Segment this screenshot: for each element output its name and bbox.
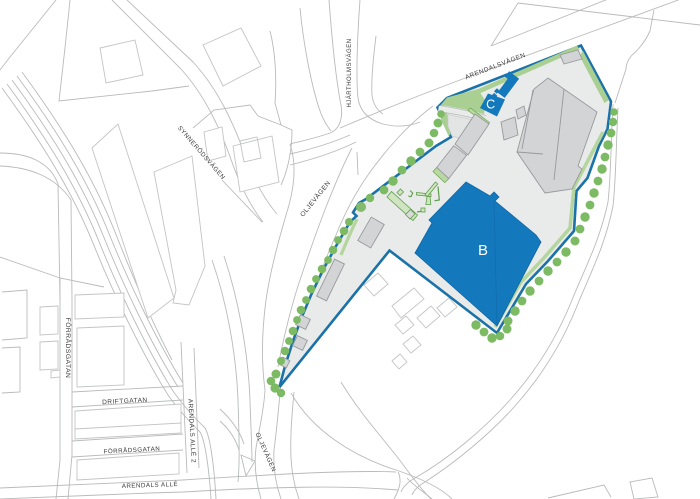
svg-text:C: C bbox=[486, 97, 495, 111]
svg-text:B: B bbox=[478, 242, 488, 259]
svg-text:FÖRRÅDSGATAN: FÖRRÅDSGATAN bbox=[64, 318, 73, 379]
svg-text:HJÄRTHOLMSVÄGEN: HJÄRTHOLMSVÄGEN bbox=[346, 38, 353, 107]
